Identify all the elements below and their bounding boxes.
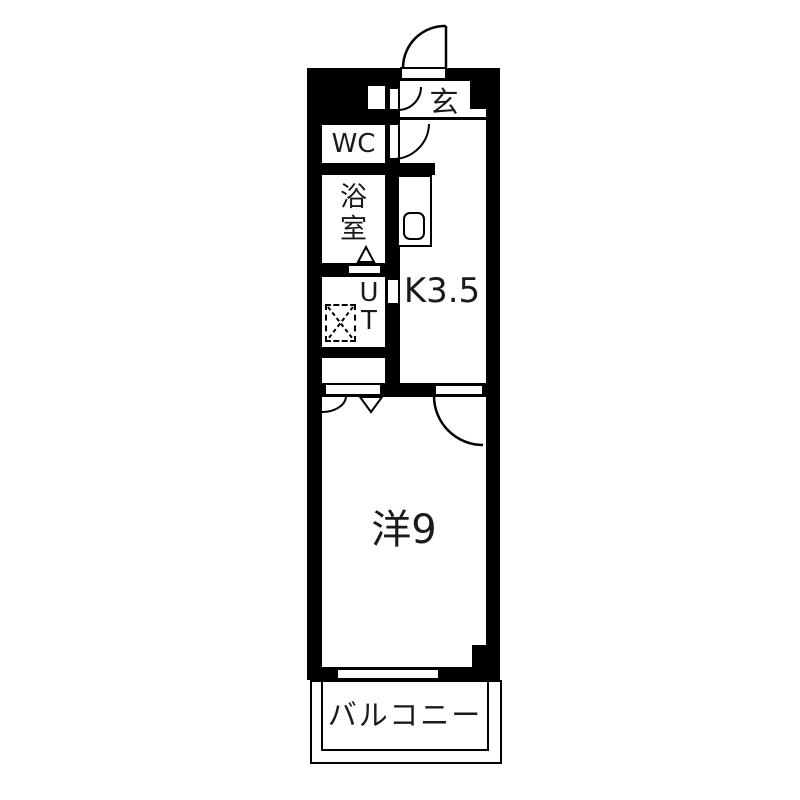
shoe-cabinet-door-leaf bbox=[388, 87, 400, 111]
bathroom-door-panel bbox=[347, 264, 382, 275]
closet bbox=[322, 358, 385, 383]
pipe-space-wall bbox=[472, 645, 500, 680]
floor-plan-canvas: 玄 WC 浴 室 U T K3.5 洋9 バルコニー bbox=[0, 0, 800, 800]
utility-kitchen-door-panel bbox=[386, 278, 400, 305]
wc-room: WC bbox=[322, 125, 385, 163]
entrance-threshold bbox=[400, 67, 447, 80]
utility-label-char1: U bbox=[354, 279, 384, 307]
wc-door-leaf bbox=[388, 123, 400, 160]
balcony-window bbox=[338, 670, 438, 678]
kitchen-label: K3.5 bbox=[400, 272, 484, 310]
kitchen-room-door-leaf bbox=[434, 384, 484, 396]
closet-door-panel bbox=[324, 383, 382, 396]
shoe-cabinet bbox=[366, 84, 387, 111]
kitchen-sink-icon bbox=[403, 212, 425, 240]
utility-label-char2: T bbox=[354, 307, 384, 335]
laundry-pan-box bbox=[325, 304, 356, 342]
western-room-label: 洋9 bbox=[352, 505, 456, 555]
hall-kitchen-passage bbox=[435, 163, 486, 175]
entrance-label: 玄 bbox=[424, 85, 464, 119]
bathroom-label-char1: 浴 bbox=[322, 182, 385, 212]
entrance-door-swing-icon bbox=[403, 26, 446, 67]
bathroom-label-char2: 室 bbox=[322, 214, 385, 244]
balcony: バルコニー bbox=[321, 680, 489, 751]
